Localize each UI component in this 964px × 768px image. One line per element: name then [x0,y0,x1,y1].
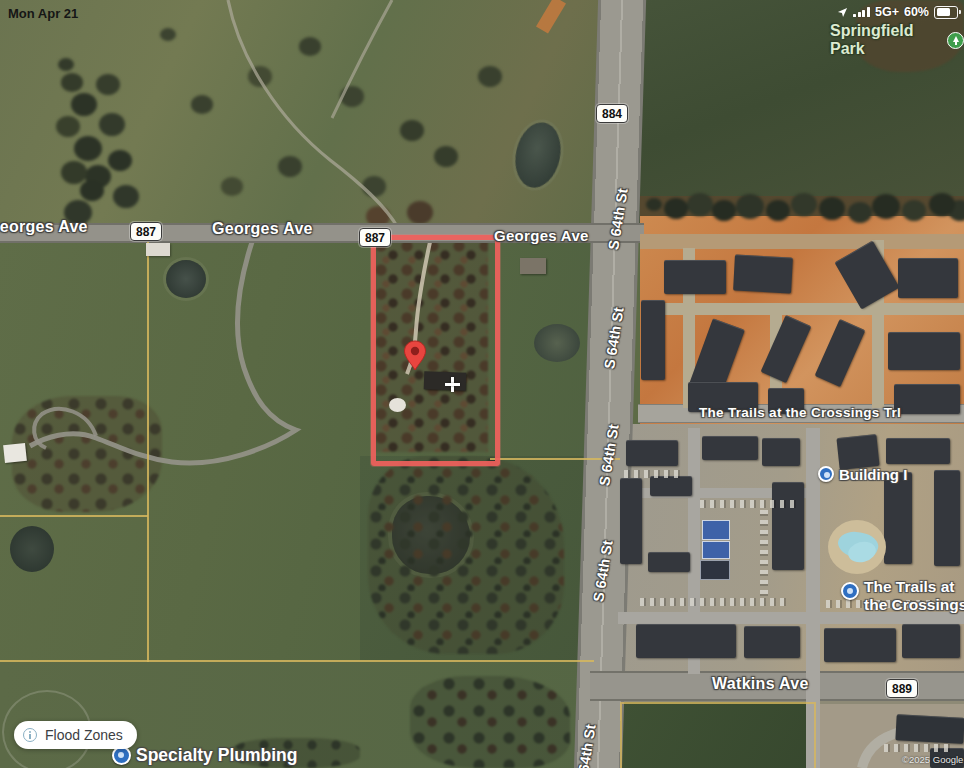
parked-cars [700,500,796,508]
building [895,714,964,744]
building [620,478,642,564]
flood-zones-button[interactable]: Flood Zones [14,721,137,749]
road-label-trails-trl: The Trails at the Crossings Trl [699,405,901,420]
route-shield-887: 887 [359,228,391,247]
info-icon [23,728,37,742]
parked-cars [884,744,954,752]
poi-icon [841,582,859,600]
poi-label-text: The Trails at the Crossings [864,578,964,614]
poi-label-text: Specialty Plumbing [136,746,297,764]
building [702,436,758,460]
building [650,476,692,496]
white-shed [146,243,170,256]
network-type: 5G+ [875,5,899,19]
poi-trails-at-crossings[interactable]: The Trails at the Crossings [841,578,964,614]
white-barn [3,443,27,463]
building [636,624,736,658]
map-attribution: ©2025 Google [902,754,963,765]
building [894,384,960,414]
pond [166,260,206,298]
parcel-line [0,515,148,517]
parcel-line [0,660,594,662]
road-label-georges-ave-west: Georges Ave [0,218,88,236]
poi-label-line1: The Trails at [864,578,964,596]
cellular-signal-icon [853,7,870,17]
building [744,626,800,658]
route-shield-884: 884 [596,104,628,123]
route-shield-887: 887 [130,222,162,241]
parked-cars [624,470,684,478]
building [648,552,690,572]
south-woodland [368,456,564,654]
parcel-line [147,242,149,662]
field-top-left [0,0,612,232]
park-label-text: Springfield Park [830,22,941,58]
building [884,472,912,564]
building [902,624,960,658]
poi-label-line2: the Crossings [864,596,964,614]
building [733,255,793,294]
sport-court [700,560,730,580]
location-arrow-icon [837,7,848,18]
building [772,482,804,570]
parked-cars [760,510,768,600]
sport-court [702,541,730,559]
building [762,438,800,466]
road-label-watkins-ave: Watkins Ave [712,675,809,693]
building [888,332,960,370]
building [836,434,879,470]
status-date: Mon Apr 21 [8,6,78,21]
building [824,628,896,662]
route-shield-889: 889 [886,679,918,698]
crosshair-icon [445,377,460,392]
building [934,470,960,566]
poi-icon [818,466,834,482]
hedgerow-trees [646,198,662,211]
construction-road [650,303,964,315]
status-indicators: 5G+ 60% [837,5,958,19]
road-label-georges-ave-east: Georges Ave [494,227,589,244]
battery-percent: 60% [904,5,929,19]
building [664,260,726,294]
building [626,440,678,466]
poi-building-i[interactable]: Building I [818,466,907,484]
tree-cluster [58,58,74,71]
map-pin-icon[interactable] [403,340,427,372]
maps-app-screen: Georges Ave 887 Georges Ave 887 Georges … [0,0,964,768]
selected-parcel-outline[interactable] [371,235,500,466]
tree-cluster [410,676,570,768]
pond [534,324,580,362]
satellite-map[interactable]: Georges Ave 887 Georges Ave 887 Georges … [0,0,964,768]
road-label-georges-ave-center: Georges Ave [212,220,313,238]
battery-icon [934,6,958,19]
farm-house [520,258,546,274]
flood-zones-label: Flood Zones [45,727,123,743]
construction-access-road [640,234,964,249]
homestead-trees [12,396,162,512]
poi-label-text: Building I [839,466,907,484]
parcel-line-box [620,702,816,768]
tree-cluster [160,28,176,41]
poi-specialty-plumbing[interactable]: Specialty Plumbing [112,746,297,765]
park-icon [947,32,964,49]
sport-court [702,520,730,540]
poi-springfield-park[interactable]: Springfield Park [830,22,964,58]
building [886,438,950,464]
building [898,258,958,298]
building [641,300,665,380]
pond [10,526,54,572]
